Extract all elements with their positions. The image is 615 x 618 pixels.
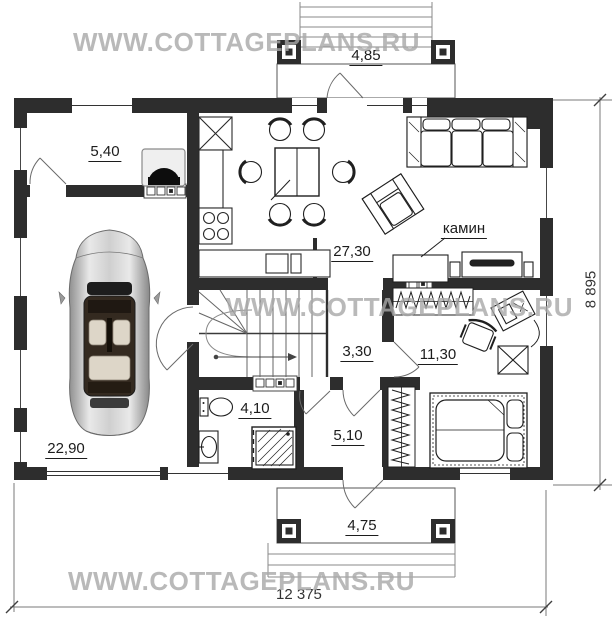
dim-top-porch: 4,85: [349, 47, 382, 64]
kitchen-fixtures: [199, 117, 330, 277]
floor-plan-page: WWW.COTTAGEPLANS.RU WWW.COTTAGEPLANS.RU …: [0, 0, 615, 618]
dim-overall-width: 12 375: [276, 586, 322, 603]
bedroom-nightstand: [498, 346, 528, 374]
fireplace-label: камин: [441, 220, 487, 237]
fireplace-leader-line: [421, 238, 445, 257]
room-label-kitchen-living: 27,30: [331, 243, 373, 260]
boiler: [142, 149, 185, 186]
bed: [430, 393, 527, 468]
room-label-hallway: 3,30: [340, 343, 373, 360]
car: [59, 230, 160, 436]
stairs: [199, 290, 327, 377]
floor-plan-drawing: [0, 0, 615, 618]
armchair: [362, 174, 423, 234]
room-label-bedroom: 11,30: [418, 346, 458, 363]
room-label-bathroom: 4,10: [238, 400, 271, 417]
fireplace: [393, 252, 533, 282]
dim-bottom-porch: 4,75: [345, 517, 378, 534]
sofa: [407, 117, 527, 167]
lamp-arc: [531, 320, 539, 347]
dim-overall-depth: 8 895: [583, 255, 600, 325]
room-label-entry-hall: 5,10: [331, 427, 364, 444]
dining-table: [240, 119, 354, 225]
room-label-garage: 22,90: [45, 440, 87, 457]
room-label-boiler-room: 5,40: [88, 143, 121, 160]
bedroom-desk: [491, 291, 535, 331]
bedroom-chair: [459, 316, 499, 353]
